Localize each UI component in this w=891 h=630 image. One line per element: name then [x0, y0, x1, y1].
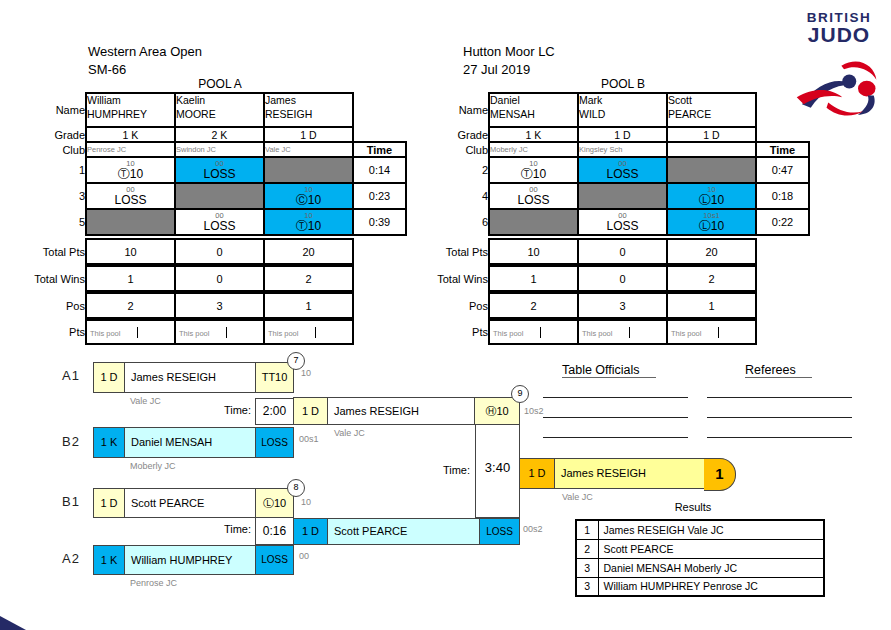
result-position: 1	[576, 520, 598, 539]
referees-line	[707, 397, 852, 398]
match-number: 3	[28, 183, 86, 209]
row-label-total-wins: Total Wins	[28, 266, 86, 291]
match-result-cell: 00LOSS	[489, 183, 578, 209]
total-wins-cell: 1	[86, 266, 175, 291]
sf1-bottom-club: Moberly JC	[130, 461, 176, 471]
pts-cell: This pool	[578, 320, 667, 344]
sf1-top-score: 10	[301, 368, 311, 378]
sf1-time-value: 2:00	[255, 398, 294, 425]
total-pts-cell: 0	[175, 239, 264, 264]
player-club-cell: Kingsley Sch	[578, 142, 667, 157]
player-grade-cell: 1 K	[489, 127, 578, 142]
match-result-cell-blocked	[264, 157, 353, 183]
match-time: 0:22	[756, 209, 809, 235]
match-result-cell: 10s1Ⓛ10	[667, 209, 756, 235]
scoresheet-page: Western Area Open SM-66 Hutton Moor LC 2…	[0, 0, 891, 630]
final-time-label: Time:	[398, 464, 470, 476]
sf1-bottom-score: 00s1	[299, 434, 319, 444]
match-time: 0:23	[353, 183, 406, 209]
total-wins-cell: 2	[264, 266, 353, 291]
row-label-pos: Pos	[431, 293, 489, 318]
final-top-score: 10s2	[524, 406, 544, 416]
sf2-time-value: 0:16	[255, 517, 294, 545]
sf2-bottom-name: William HUMPHREY	[124, 545, 256, 575]
winner-grade: 1 D	[519, 458, 555, 489]
player-grade-cell: 1 D	[667, 127, 756, 142]
player-name-cell: MarkWILD	[578, 93, 667, 127]
final-top-name: James RESEIGH	[327, 397, 475, 425]
match-result-cell-blocked	[578, 183, 667, 209]
winner-club: Vale JC	[562, 492, 593, 502]
row-label-total-pts: Total Pts	[431, 239, 489, 264]
player-name-cell: ScottPEARCE	[667, 93, 756, 127]
match-result-cell: 10Ⓣ10	[489, 157, 578, 183]
player-club-cell: Penrose JC	[86, 142, 175, 157]
player-name-cell: WilliamHUMPHREY	[86, 93, 175, 127]
sf1-top-grade: 1 D	[93, 362, 125, 393]
match-number-circle-8: 8	[287, 479, 305, 497]
match-result-cell: 00LOSS	[86, 183, 175, 209]
sf2-bottom-grade: 1 K	[93, 545, 125, 575]
pts-cell: This pool	[86, 320, 175, 344]
row-label-club: Club	[431, 142, 489, 157]
sf1-bottom-result: LOSS	[255, 427, 294, 458]
row-label-grade: Grade	[431, 127, 489, 142]
pos-cell: 3	[578, 293, 667, 318]
row-label-pts: Pts	[28, 320, 86, 344]
sf1-top-club: Vale JC	[130, 396, 161, 406]
event-category: SM-66	[88, 62, 126, 77]
final-top-grade: 1 D	[293, 397, 328, 425]
total-pts-cell: 20	[667, 239, 756, 264]
row-label-pts: Pts	[431, 320, 489, 344]
referees-line	[707, 437, 852, 438]
final-time-value: 3:40	[475, 460, 520, 475]
match-time: 0:39	[353, 209, 406, 235]
british-judo-logo-text2: JUDO	[803, 23, 875, 47]
total-wins-cell: 1	[489, 266, 578, 291]
match-time: 0:47	[756, 157, 809, 183]
bracket-slot-b1: B1	[62, 494, 80, 509]
row-label-total-pts: Total Pts	[28, 239, 86, 264]
pos-cell: 2	[489, 293, 578, 318]
sf2-top-score: 10	[301, 497, 311, 507]
pts-cell: This pool	[667, 320, 756, 344]
results-row: 3 Daniel MENSAH Moberly JC	[576, 558, 824, 577]
pos-cell: 1	[667, 293, 756, 318]
pts-cell: This pool	[175, 320, 264, 344]
sf1-bottom-grade: 1 K	[93, 427, 125, 458]
match-result-cell: 00LOSS	[175, 157, 264, 183]
total-pts-cell: 10	[86, 239, 175, 264]
result-name: William HUMPHREY Penrose JC	[598, 577, 824, 596]
table-officials-line	[543, 397, 688, 398]
match-time: 0:14	[353, 157, 406, 183]
results-row: 2 Scott PEARCE	[576, 539, 824, 558]
sf1-top-name: James RESEIGH	[124, 362, 256, 393]
bracket-slot-b2: B2	[62, 434, 80, 449]
match-number-circle-9: 9	[511, 385, 529, 403]
pos-cell: 2	[86, 293, 175, 318]
player-grade-cell: 2 K	[175, 127, 264, 142]
player-name-cell: KaelinMOORE	[175, 93, 264, 127]
sf2-top-grade: 1 D	[93, 488, 125, 518]
result-position: 2	[576, 539, 598, 558]
row-label-pos: Pos	[28, 293, 86, 318]
match-number-circle-7: 7	[287, 352, 305, 370]
time-column-header: Time	[353, 142, 406, 157]
pts-cell: This pool	[489, 320, 578, 344]
result-position: 3	[576, 558, 598, 577]
match-result-cell: 10Ⓛ10	[667, 183, 756, 209]
match-result-cell-blocked	[175, 183, 264, 209]
total-wins-cell: 0	[578, 266, 667, 291]
player-grade-cell: 1 K	[86, 127, 175, 142]
row-label-grade: Grade	[28, 127, 86, 142]
match-result-cell-blocked	[667, 157, 756, 183]
match-result-cell: 00LOSS	[578, 157, 667, 183]
event-date: 27 Jul 2019	[463, 62, 530, 77]
sf2-bottom-club: Penrose JC	[130, 578, 177, 588]
player-grade-cell: 1 D	[264, 127, 353, 142]
bracket-slot-a1: A1	[62, 368, 80, 383]
result-name: James RESEIGH Vale JC	[598, 520, 824, 539]
row-label-total-wins: Total Wins	[431, 266, 489, 291]
match-result-cell: 10Ⓒ10	[264, 183, 353, 209]
match-time: 0:18	[756, 183, 809, 209]
player-club-cell: Swindon JC	[175, 142, 264, 157]
result-position: 3	[576, 577, 598, 596]
bracket-slot-a2: A2	[62, 551, 80, 566]
pool-a-title: POOL A	[150, 77, 290, 91]
match-result-cell: 00LOSS	[578, 209, 667, 235]
row-label-name: Name	[28, 93, 86, 127]
player-name-cell: JamesRESEIGH	[264, 93, 353, 127]
row-label-club: Club	[28, 142, 86, 157]
winner-place-badge: 1	[704, 458, 736, 491]
table-officials-title: Table Officials	[562, 363, 656, 378]
sf1-bottom-name: Daniel MENSAH	[124, 427, 256, 458]
match-number: 4	[431, 183, 489, 209]
row-label-name: Name	[431, 93, 489, 127]
player-club-cell	[667, 142, 756, 157]
table-officials-line	[543, 437, 688, 438]
match-result-cell-blocked	[489, 209, 578, 235]
sf2-bottom-result: LOSS	[255, 545, 294, 575]
final-top-club: Vale JC	[334, 428, 365, 438]
results-row: 1 James RESEIGH Vale JC	[576, 520, 824, 539]
winner-name: James RESEIGH	[554, 458, 705, 489]
page-corner-mark	[0, 616, 26, 630]
final-bottom-name: Scott PEARCE	[327, 518, 480, 545]
table-officials-line	[543, 417, 688, 418]
match-result-cell: 10Ⓣ10	[264, 209, 353, 235]
result-name: Daniel MENSAH Moberly JC	[598, 558, 824, 577]
results-title: Results	[643, 501, 743, 513]
event-title: Western Area Open	[88, 44, 202, 59]
total-wins-cell: 0	[175, 266, 264, 291]
match-number: 1	[28, 157, 86, 183]
total-pts-cell: 0	[578, 239, 667, 264]
sf2-top-name: Scott PEARCE	[124, 488, 256, 518]
match-number: 6	[431, 209, 489, 235]
match-result-cell-blocked	[86, 209, 175, 235]
result-name: Scott PEARCE	[598, 539, 824, 558]
sf2-time-label: Time:	[175, 523, 251, 535]
player-club-cell: Vale JC	[264, 142, 353, 157]
match-result-cell: 10Ⓣ10	[86, 157, 175, 183]
pos-cell: 1	[264, 293, 353, 318]
pool-a-table: Name WilliamHUMPHREY KaelinMOORE JamesRE…	[28, 92, 407, 345]
total-wins-cell: 2	[667, 266, 756, 291]
total-pts-cell: 10	[489, 239, 578, 264]
final-bottom-grade: 1 D	[293, 518, 328, 545]
match-number: 5	[28, 209, 86, 235]
final-top-result: Ⓗ10	[474, 397, 520, 425]
referees-line	[707, 417, 852, 418]
sf2-bottom-score: 00	[299, 551, 309, 561]
referees-title: Referees	[745, 363, 812, 378]
player-grade-cell: 1 D	[578, 127, 667, 142]
player-club-cell: Moberly JC	[489, 142, 578, 157]
final-bottom-score: 00s2	[523, 524, 543, 534]
match-number: 2	[431, 157, 489, 183]
final-bottom-result: LOSS	[479, 518, 520, 545]
results-row: 3 William HUMPHREY Penrose JC	[576, 577, 824, 596]
event-venue: Hutton Moor LC	[463, 44, 555, 59]
pos-cell: 3	[175, 293, 264, 318]
pool-b-title: POOL B	[553, 77, 693, 91]
pts-cell: This pool	[264, 320, 353, 344]
match-result-cell: 00LOSS	[175, 209, 264, 235]
player-name-cell: DanielMENSAH	[489, 93, 578, 127]
results-table: 1 James RESEIGH Vale JC 2 Scott PEARCE 3…	[575, 519, 825, 597]
total-pts-cell: 20	[264, 239, 353, 264]
time-column-header: Time	[756, 142, 809, 157]
sf1-time-label: Time:	[175, 404, 251, 416]
pool-b-table: Name DanielMENSAH MarkWILD ScottPEARCE G…	[431, 92, 810, 345]
